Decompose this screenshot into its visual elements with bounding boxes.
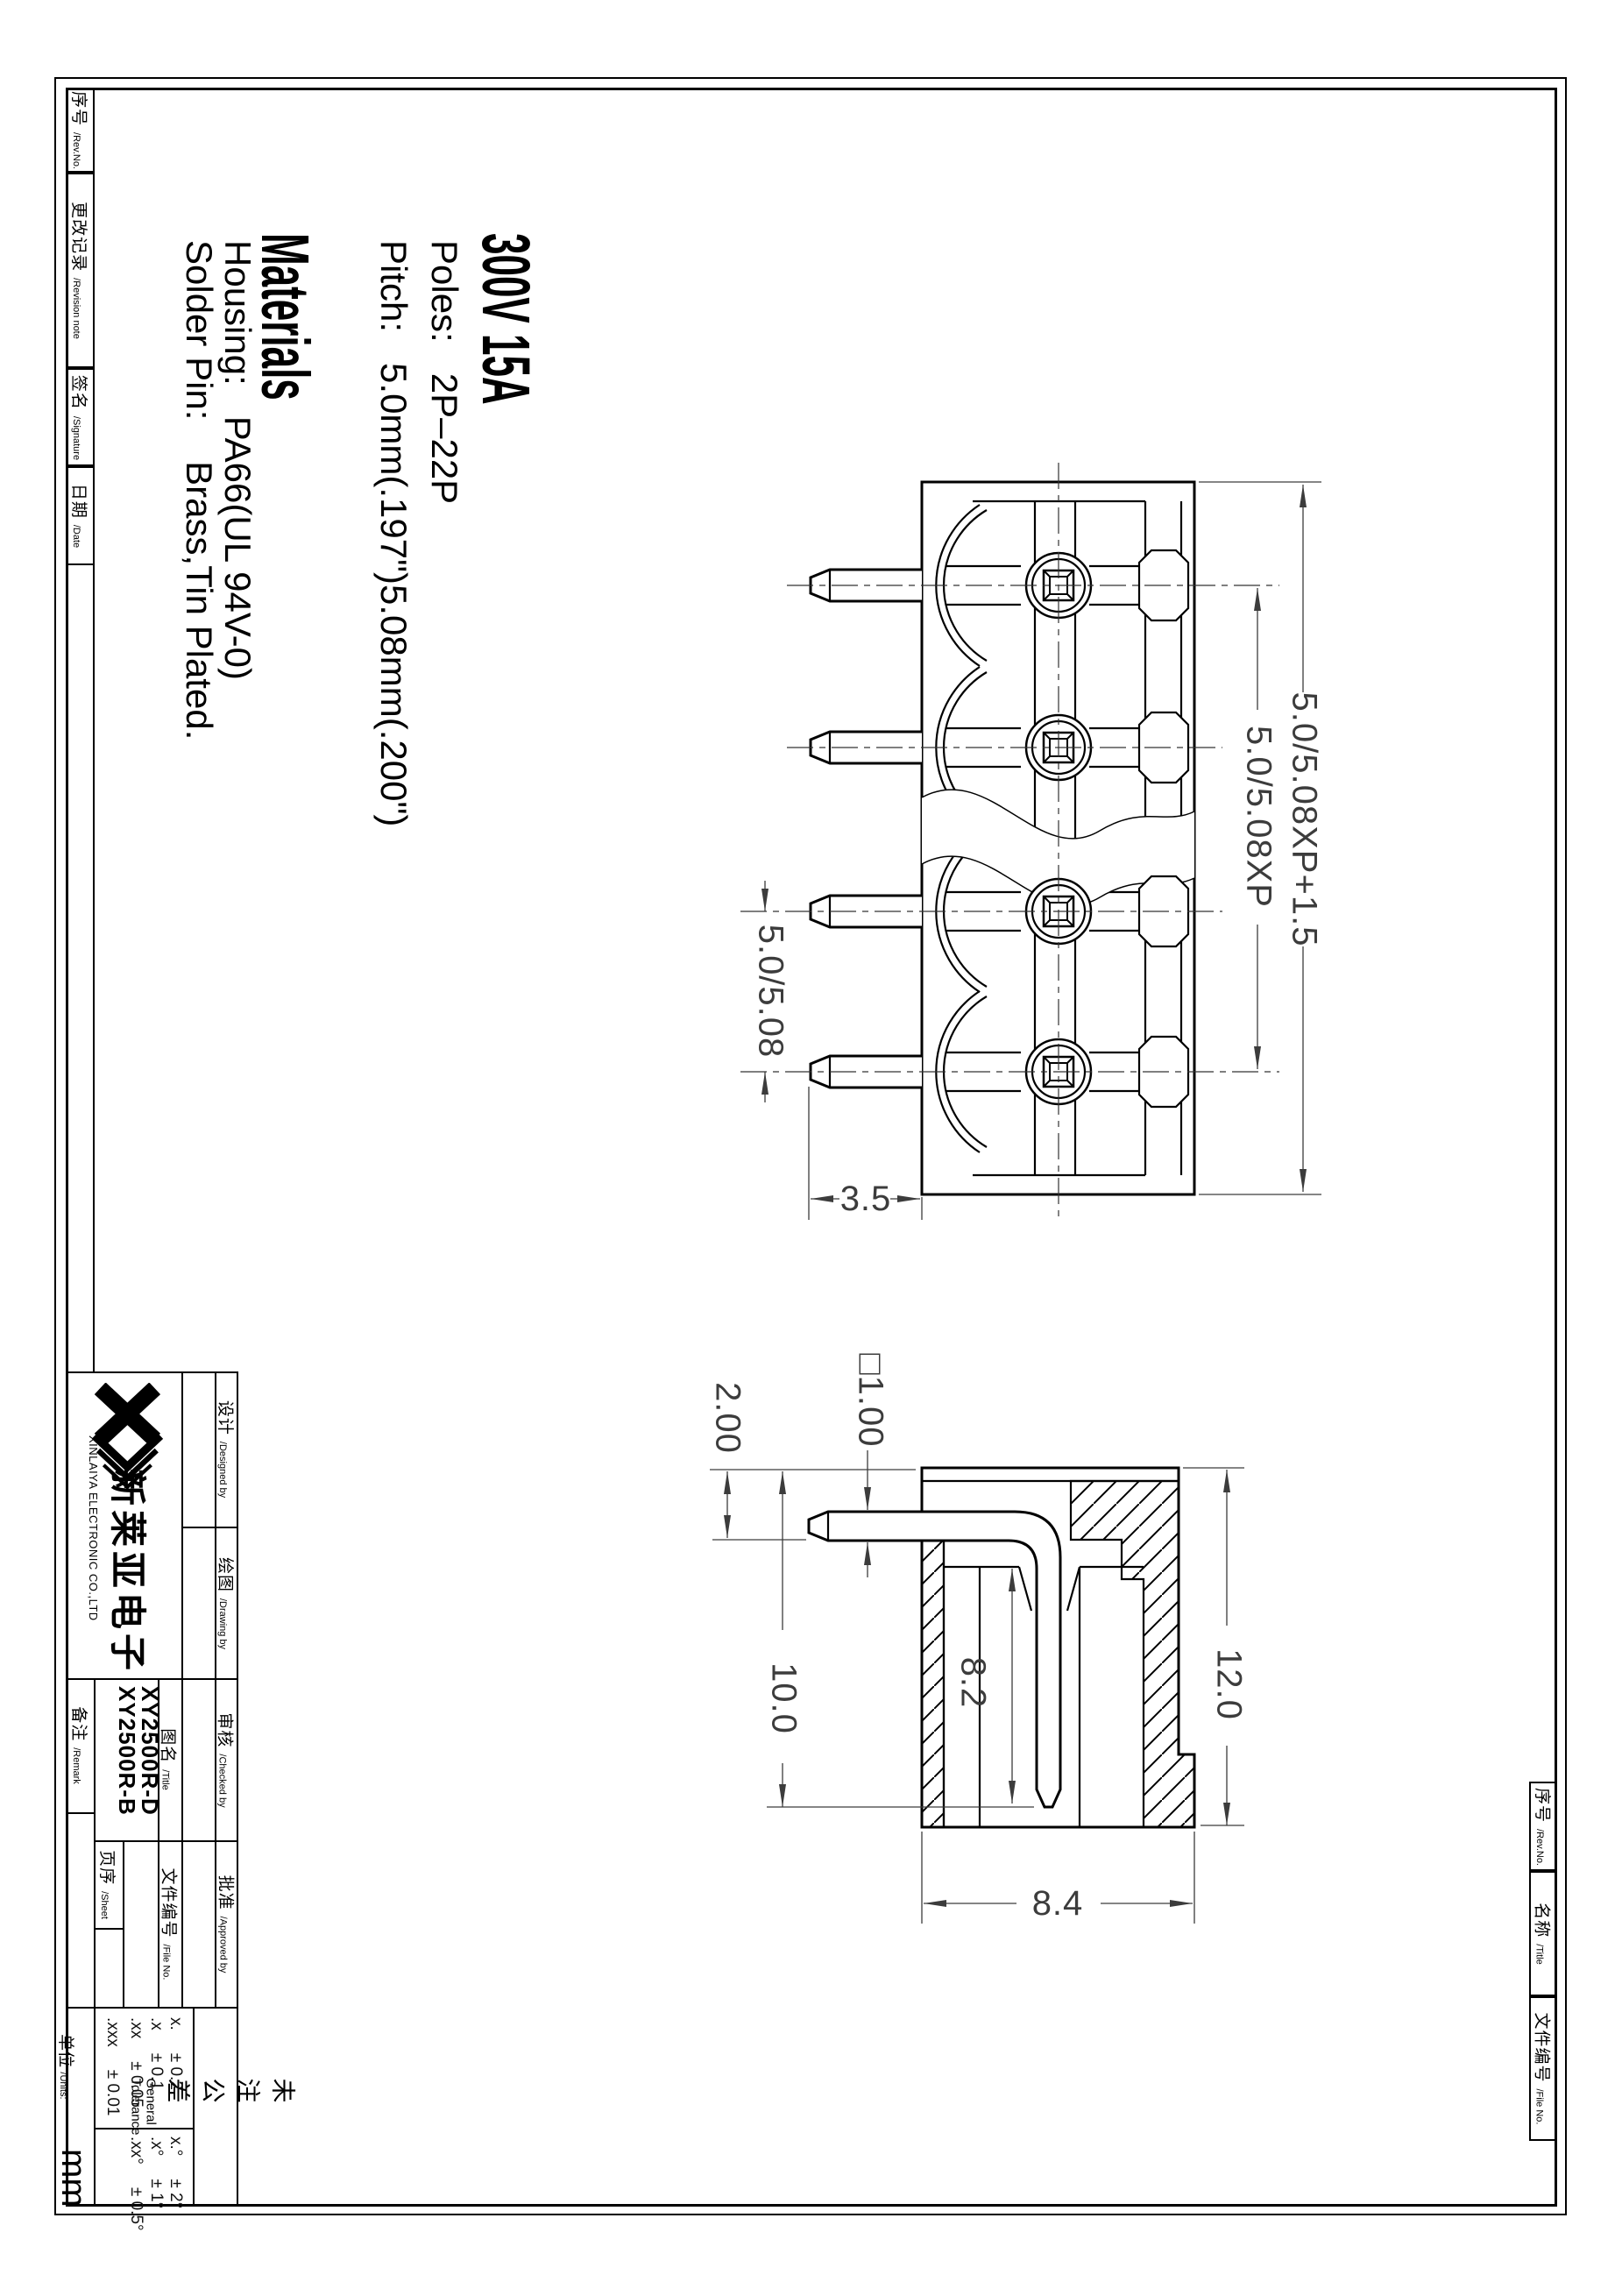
corner-revno-cell: 序号/Rev.No. (1529, 1782, 1557, 1871)
tolerance-row-3: .xxx± 0.01 (104, 2017, 121, 2115)
tolerance-ang-0: x.°± 2° (167, 2137, 184, 2208)
revision-date-zh: 日期 (68, 484, 92, 519)
tb-remark-en: /Remark (71, 1747, 81, 1784)
tol-ak0: x.° (167, 2137, 184, 2156)
tol-av2: ± 0.5° (128, 2187, 145, 2231)
dim-pin-square: □1.00 (851, 1353, 889, 1447)
tol-ak2: .xx° (128, 2137, 145, 2165)
tb-remark-cell: 备注/Remark (66, 1678, 94, 1812)
tb-sheet-cell: 页序/Sheet (94, 1840, 123, 1928)
dim-pitch: 5.0/5.08 (751, 925, 790, 1059)
tb-units-value: mm (56, 2149, 91, 2207)
tb-approved-cell: 批准/Approved by (215, 1840, 238, 2007)
tb-line-v140 (123, 1840, 124, 2007)
corner-revno-en: /Rev.No. (1534, 1829, 1545, 1866)
dim-height: 12.0 (1209, 1648, 1248, 1720)
tb-units-label: 单位 /Units: (40, 2016, 90, 2100)
dim-pin-length: 2.00 (708, 1382, 747, 1454)
revision-revno-en: /Rev.No. (71, 132, 81, 169)
tolerance-row-1: .x± 0.1 (148, 2017, 165, 2090)
spec-poles: Poles: 2P–22P (426, 240, 463, 504)
tb-sheet-zh: 页序 (96, 1850, 120, 1885)
right-wall-hatch (1071, 1481, 1194, 1827)
technical-drawing: 5.0/5.08XP+1.5 5.0/5.08XP 5.0/5.08 3.5 2… (701, 456, 1367, 1981)
tol-v1: ± 0.1 (148, 2053, 165, 2090)
revision-note-en: /Revision note (71, 278, 81, 339)
tolerance-ang-2: .xx°± 0.5° (128, 2137, 145, 2231)
tol-k2: .xx (128, 2017, 145, 2038)
top-view (740, 463, 1279, 1216)
tb-checked-cell: 审核/Checked by (215, 1680, 238, 1840)
tb-approved-zh: 批准 (215, 1874, 238, 1910)
tb-units-zh: 单位 (56, 2034, 74, 2067)
tb-fileno-zh: 文件编号 (158, 1867, 181, 1938)
tb-line-v107 (94, 1678, 96, 2207)
spec-housing: Housing: PA66(UL 94V-0) (219, 240, 256, 680)
tol-k0: x. (167, 2017, 184, 2030)
revision-date-en: /Date (71, 525, 81, 548)
tb-fileno-cell: 文件编号/File No. (158, 1840, 181, 2007)
spec-pitch: Pitch: 5.0mm(.197")5.08mm(.200") (375, 240, 412, 826)
tb-checked-zh: 审核 (215, 1712, 238, 1747)
dim-overall-length: 5.0/5.08XP+1.5 (1285, 692, 1323, 947)
tb-designed-en: /Designed by (217, 1442, 228, 1498)
tb-designed-zh: 设计 (215, 1400, 238, 1435)
corner-name-en: /Title (1534, 1944, 1545, 1964)
corner-name-zh: 名称 (1532, 1903, 1555, 1938)
dim-pin-span: 5.0/5.08XP (1239, 726, 1278, 908)
revision-sign-zh: 签名 (68, 374, 92, 409)
dim-width: 8.4 (1032, 1884, 1084, 1923)
dim-slot-depth: 8.2 (953, 1657, 992, 1709)
tb-line-h2068 (66, 1812, 94, 1814)
revision-sign-en: /Signature (71, 415, 81, 459)
tol-v0: ± 0.2 (167, 2053, 184, 2090)
tol-av0: ± 2° (167, 2179, 184, 2208)
tb-units-en: /Units: (58, 2072, 68, 2099)
revision-revno-zh: 序号 (68, 91, 92, 126)
revision-header-revno: 序号/Rev.No. (66, 88, 95, 173)
tb-line-h2200 (94, 1928, 123, 1930)
revision-header-date: 日期/Date (66, 466, 95, 565)
corner-revno-zh: 序号 (1532, 1788, 1555, 1823)
tol-av1: ± 1° (148, 2179, 165, 2208)
tolerance-heading-cell: 未注公差 General Tolerance (193, 2007, 238, 2207)
tol-v2: ± 0.05 (128, 2061, 145, 2108)
tolerance-row-0: x.± 0.2 (167, 2017, 184, 2090)
tolerance-row-2: .xx± 0.05 (128, 2017, 145, 2108)
spec-solder: Solder Pin: Brass,Tin Plated. (181, 240, 217, 740)
tol-ak1: .x° (148, 2137, 165, 2156)
corner-fileno-en: /File No. (1534, 2089, 1545, 2125)
spec-materials: Materials (250, 233, 317, 400)
revision-note-zh: 更改记录 (68, 202, 92, 272)
tb-remark-zh: 备注 (68, 1706, 92, 1741)
tb-drawing-cell: 绘图/Drawing by (215, 1527, 238, 1680)
revision-header-signature: 签名/Signature (66, 368, 95, 466)
dim-pin-offset: 3.5 (840, 1180, 892, 1218)
company-name-en: XINLAIYA ELECTRONIC CO.,LTD (88, 1435, 99, 1621)
corner-fileno-zh: 文件编号 (1532, 2013, 1555, 2083)
tol-k1: .x (148, 2017, 165, 2030)
corner-name-cell: 名称/Title (1529, 1871, 1557, 1996)
drawing-sheet: 序号/Rev.No. 更改记录/Revision note 签名/Signatu… (0, 0, 1622, 2296)
corner-fileno-cell: 文件编号/File No. (1529, 1996, 1557, 2141)
tb-checked-en: /Checked by (217, 1754, 228, 1807)
tol-v3: ± 0.01 (104, 2070, 121, 2116)
tb-approved-en: /Approved by (217, 1916, 228, 1973)
tb-fileno-en: /File No. (160, 1944, 171, 1980)
part-number-1: XY2500R-B (116, 1686, 138, 1816)
tb-drawing-zh: 绘图 (215, 1557, 238, 1592)
dim-depth: 10.0 (764, 1662, 803, 1734)
tb-drawing-en: /Drawing by (217, 1598, 228, 1649)
revision-header-note: 更改记录/Revision note (66, 173, 95, 368)
company-name-zh: 新莱亚电子 (109, 1469, 145, 1675)
tol-k3: .xxx (104, 2017, 121, 2047)
revision-strip-line (93, 565, 95, 1371)
tb-top (66, 1371, 238, 1373)
left-wall-hatch (922, 1541, 944, 1827)
tb-sheet-en: /Sheet (99, 1891, 110, 1919)
tolerance-ang-1: .x°± 1° (148, 2137, 165, 2208)
part-number-2: XY2500R-D (138, 1686, 161, 1816)
spec-voltage: 300V 15A (471, 233, 538, 405)
side-view (809, 1468, 1194, 1827)
tb-designed-cell: 设计/Designed by (215, 1371, 238, 1527)
pins-top-view (811, 570, 922, 1088)
